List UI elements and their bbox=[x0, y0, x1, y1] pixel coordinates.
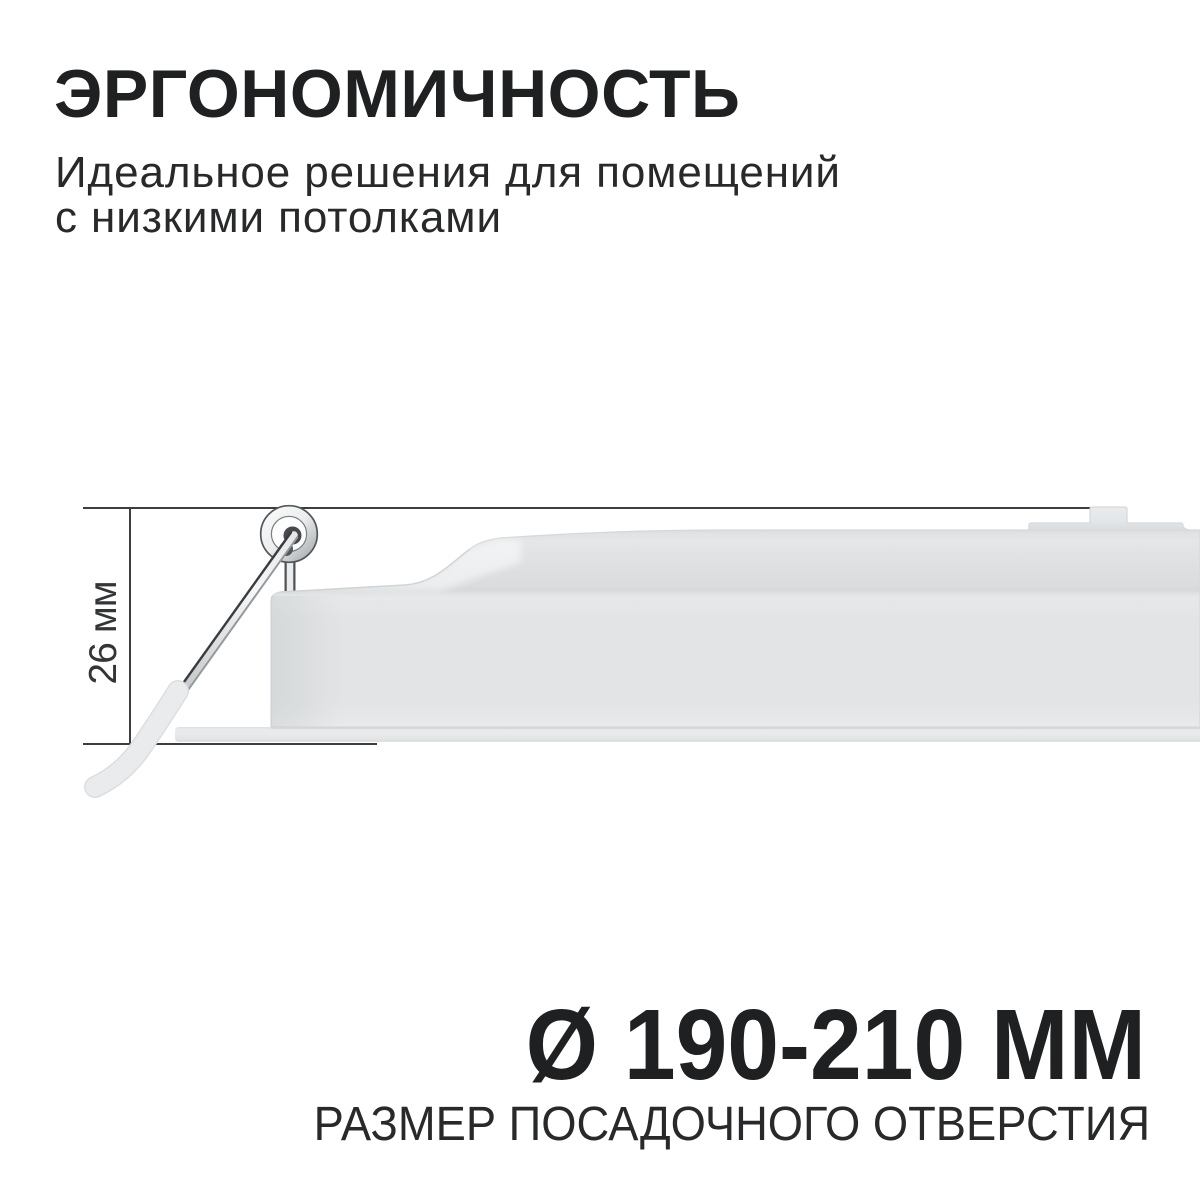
svg-text:26 мм: 26 мм bbox=[82, 581, 125, 684]
